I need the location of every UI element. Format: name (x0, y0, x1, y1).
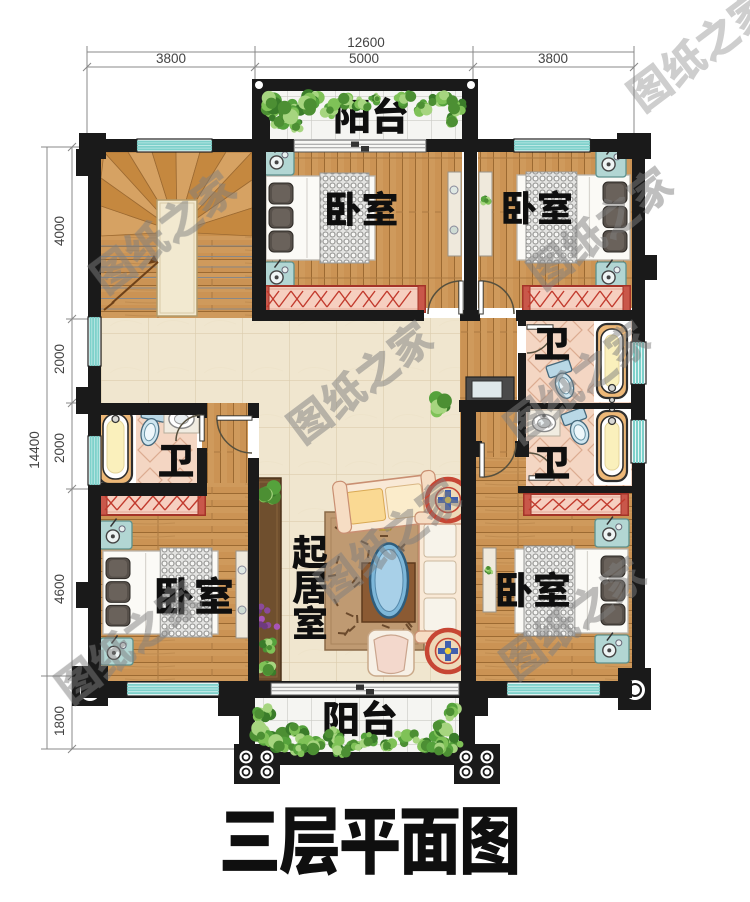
svg-text:5000: 5000 (349, 51, 379, 66)
svg-text:3800: 3800 (538, 51, 568, 66)
svg-text:2000: 2000 (52, 433, 67, 463)
svg-text:12600: 12600 (347, 35, 385, 50)
svg-text:14400: 14400 (27, 431, 42, 469)
svg-text:4000: 4000 (52, 216, 67, 246)
svg-text:2000: 2000 (52, 344, 67, 374)
svg-text:1800: 1800 (52, 706, 67, 736)
svg-text:4600: 4600 (52, 574, 67, 604)
svg-text:3800: 3800 (156, 51, 186, 66)
